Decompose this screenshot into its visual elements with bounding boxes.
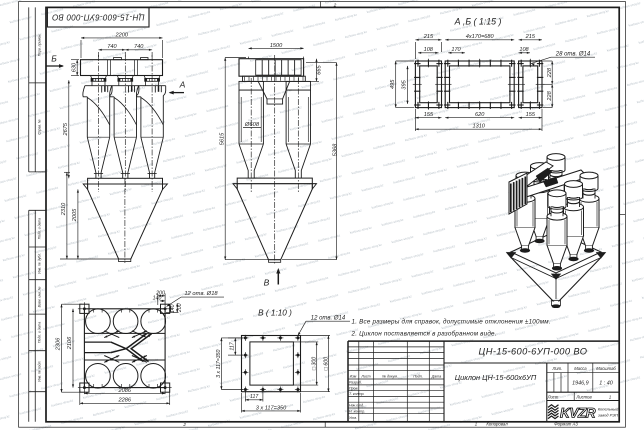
svg-text:28 отв. Ø14: 28 отв. Ø14 [555, 52, 591, 58]
svg-text:200: 200 [177, 303, 183, 313]
svg-text:ЦН-15-600-6УП-000 ВО: ЦН-15-600-6УП-000 ВО [479, 346, 588, 356]
svg-text:завод РЭП: завод РЭП [597, 413, 618, 418]
svg-text:2286: 2286 [118, 398, 132, 404]
svg-text:Н. контр.: Н. контр. [349, 409, 365, 413]
svg-text:ЦН-15-600-6УП-000 ВО: ЦН-15-600-6УП-000 ВО [52, 13, 145, 22]
svg-text:2106: 2106 [67, 336, 73, 350]
svg-text:□ 600: □ 600 [323, 357, 329, 370]
svg-text:228: 228 [547, 67, 553, 78]
svg-text:Подп.: Подп. [413, 374, 423, 378]
svg-text:2675: 2675 [63, 122, 69, 136]
svg-text:2: 2 [182, 422, 186, 427]
svg-text:Лист: Лист [360, 374, 370, 378]
svg-text:Копельный: Копельный [598, 407, 619, 412]
svg-text:3 x 117=350: 3 x 117=350 [256, 405, 287, 411]
svg-text:Дата: Дата [431, 374, 441, 378]
svg-text:5615: 5615 [219, 132, 225, 145]
svg-text:740: 740 [134, 44, 144, 50]
svg-text:2310: 2310 [61, 202, 67, 216]
svg-text:108: 108 [424, 47, 434, 53]
svg-text:Инв. № подл.: Инв. № подл. [38, 361, 42, 382]
svg-text:Копировал: Копировал [486, 422, 508, 427]
svg-text:665: 665 [316, 64, 322, 74]
svg-text:1: 1 [609, 394, 611, 399]
svg-text:155: 155 [526, 112, 536, 118]
svg-text:2005: 2005 [72, 208, 78, 222]
svg-text:Лист: Лист [547, 394, 559, 399]
svg-text:В: В [264, 278, 270, 288]
svg-text:Нач.отд.: Нач.отд. [349, 404, 364, 408]
svg-text:495: 495 [390, 79, 396, 89]
svg-text:А ,Б ( 1:15 ): А ,Б ( 1:15 ) [454, 16, 502, 26]
svg-text:5368: 5368 [332, 143, 338, 156]
svg-text:Лит.: Лит. [551, 366, 562, 371]
svg-text:Масштаб: Масштаб [596, 366, 616, 371]
svg-text:В ( 1:10 ): В ( 1:10 ) [258, 308, 292, 317]
svg-text:Подп. и дата: Подп. и дата [38, 218, 42, 239]
svg-text:170: 170 [451, 47, 461, 53]
svg-text:228: 228 [547, 90, 553, 101]
svg-text:Разраб.: Разраб. [349, 381, 362, 385]
svg-text:Масса: Масса [574, 366, 587, 371]
svg-text:620: 620 [475, 112, 485, 118]
svg-text:Б: Б [51, 54, 57, 64]
svg-text:740: 740 [107, 44, 117, 50]
svg-text:Формат А3: Формат А3 [554, 422, 578, 427]
svg-text:215: 215 [423, 34, 434, 40]
svg-text:Инв. № дубл.: Инв. № дубл. [38, 253, 42, 274]
svg-text:117: 117 [230, 341, 236, 350]
svg-text:630: 630 [71, 62, 77, 72]
svg-text:1 : 40: 1 : 40 [599, 380, 613, 386]
svg-text:12 отв. Ø18: 12 отв. Ø18 [184, 291, 218, 297]
svg-text:1. Все размеры для справок, до: 1. Все размеры для справок, допустимые о… [352, 318, 551, 326]
svg-text:1500: 1500 [270, 43, 283, 49]
svg-text:Пров.: Пров. [349, 386, 358, 390]
svg-text:117: 117 [250, 394, 259, 400]
svg-text:2. Циклон поставляется в разоб: 2. Циклон поставляется в разобранном вид… [351, 329, 497, 337]
svg-text:2: 2 [333, 2, 337, 7]
svg-text:Справ. №: Справ. № [38, 119, 42, 135]
svg-text:№ докум.: № докум. [382, 374, 398, 378]
svg-text:155: 155 [424, 112, 434, 118]
svg-text:1946,9: 1946,9 [572, 380, 589, 386]
svg-text:395: 395 [402, 79, 408, 89]
svg-text:1310: 1310 [472, 124, 485, 130]
svg-text:Ø608: Ø608 [244, 122, 260, 128]
svg-text:140: 140 [153, 296, 162, 302]
svg-text:Утв.: Утв. [349, 416, 357, 420]
svg-text:140: 140 [170, 304, 176, 313]
svg-text:Т. контр.: Т. контр. [349, 392, 365, 396]
svg-text:108: 108 [519, 47, 529, 53]
svg-text:4x170=680: 4x170=680 [466, 34, 495, 40]
svg-text:Перв. примен.: Перв. примен. [38, 34, 42, 57]
svg-text:А: А [179, 80, 186, 90]
svg-text:Циклон ЦН-15-600х6УП: Циклон ЦН-15-600х6УП [455, 373, 537, 382]
svg-text:KVZR: KVZR [560, 406, 596, 421]
svg-text:2306: 2306 [56, 337, 62, 351]
svg-text:2086: 2086 [118, 388, 132, 394]
svg-text:12 отв. Ø14: 12 отв. Ø14 [311, 316, 346, 322]
svg-text:□ 300: □ 300 [312, 357, 318, 370]
svg-text:3 x 117=350: 3 x 117=350 [216, 349, 222, 377]
svg-text:215: 215 [525, 34, 536, 40]
svg-text:Изм: Изм [350, 374, 357, 378]
svg-text:Листов: Листов [575, 394, 592, 399]
svg-text:2200: 2200 [115, 32, 129, 38]
svg-text:Взам. инв. №: Взам. инв. № [38, 286, 42, 307]
svg-text:Подп. и дата: Подп. и дата [38, 322, 42, 343]
